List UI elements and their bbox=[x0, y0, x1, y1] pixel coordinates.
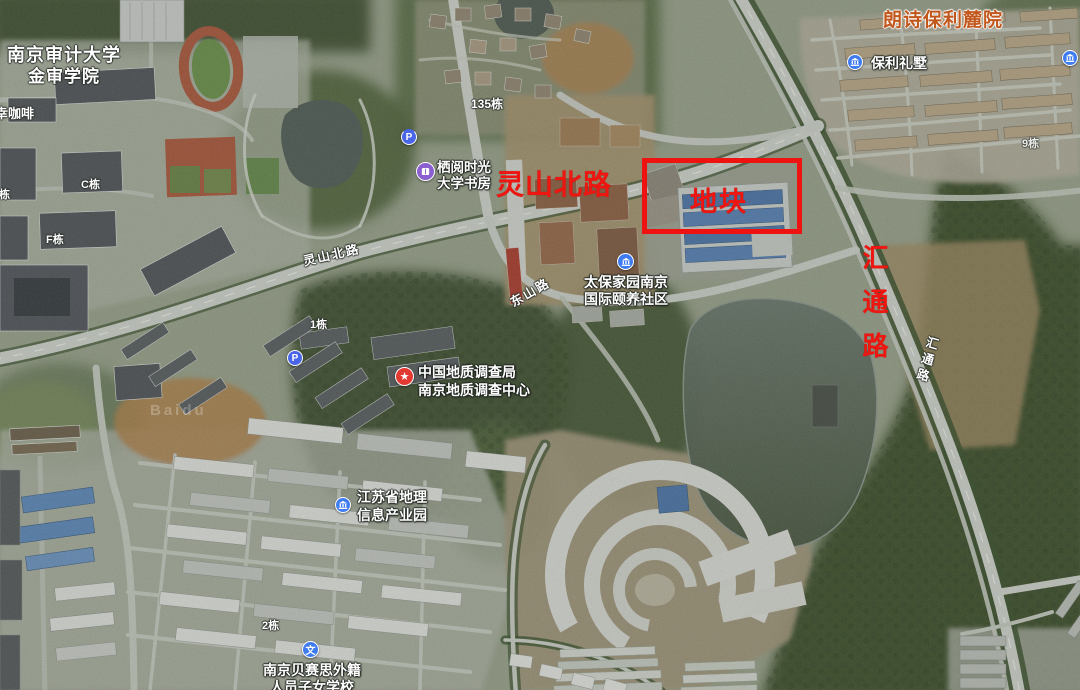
poi-label-coffee[interactable]: 幸咖啡 bbox=[0, 103, 34, 122]
parcel-annotation-text: 地块 bbox=[690, 180, 748, 219]
star-glyph: ★ bbox=[400, 370, 410, 383]
aoi-label-university: 南京审计大学 金审学院 bbox=[6, 44, 122, 88]
bookstore-icon[interactable] bbox=[416, 162, 435, 181]
building-label-9: 9栋 bbox=[1022, 135, 1039, 151]
parking-glyph: P bbox=[292, 353, 299, 364]
poi-label-basis-school[interactable]: 南京贝赛思外籍 人员子女学校 bbox=[260, 662, 364, 690]
school-icon[interactable]: 文 bbox=[302, 641, 319, 658]
school-glyph: 文 bbox=[306, 642, 316, 657]
geology-line1: 中国地质调查局 bbox=[418, 363, 530, 381]
bank-glyph bbox=[338, 500, 348, 510]
parking-icon-2[interactable]: P bbox=[287, 350, 303, 366]
baoli-villa-icon[interactable] bbox=[847, 54, 863, 70]
community-icon-edge[interactable] bbox=[1062, 50, 1078, 66]
huitong-char-column: 汇通路 bbox=[861, 244, 887, 376]
geology-line2: 南京地质调查中心 bbox=[418, 381, 530, 399]
huitong-road-annotation: 汇通路 bbox=[861, 244, 887, 376]
lingshan-road-annotation: 灵山北路 bbox=[496, 163, 612, 203]
building-label-B: B栋 bbox=[0, 186, 10, 202]
university-name-line1: 南京审计大学 bbox=[6, 44, 122, 66]
bank-glyph bbox=[1065, 53, 1075, 63]
satellite-map-viewport[interactable]: 南京审计大学 金审学院 朗诗保利麓院 幸咖啡 135栋 1栋 C栋 B栋 F栋 … bbox=[0, 0, 1080, 690]
geo-info-park-icon[interactable] bbox=[335, 497, 351, 513]
bookstore-line1: 栖阅时光 bbox=[437, 160, 491, 176]
poi-label-bookstore[interactable]: 栖阅时光 大学书房 bbox=[437, 160, 491, 192]
book-glyph bbox=[420, 166, 431, 177]
building-label-135: 135栋 bbox=[471, 95, 503, 112]
geo-park-line1: 江苏省地理 bbox=[357, 488, 427, 506]
satellite-imagery bbox=[0, 0, 1080, 690]
school-line2: 人员子女学校 bbox=[260, 679, 364, 690]
taibao-line1: 太保家园南京 bbox=[574, 274, 678, 291]
parking-icon[interactable]: P bbox=[401, 129, 417, 145]
building-label-1: 1栋 bbox=[310, 316, 327, 332]
taibao-line2: 国际颐养社区 bbox=[574, 291, 678, 308]
university-name-line2: 金审学院 bbox=[6, 66, 122, 88]
poi-label-taibao[interactable]: 太保家园南京 国际颐养社区 bbox=[574, 274, 678, 308]
poi-label-geo-info-park[interactable]: 江苏省地理 信息产业园 bbox=[357, 488, 427, 524]
bookstore-line2: 大学书房 bbox=[437, 176, 491, 192]
building-label-2: 2栋 bbox=[262, 617, 279, 633]
poi-label-baoli-villa[interactable]: 保利礼墅 bbox=[871, 55, 927, 72]
parking-glyph: P bbox=[406, 132, 413, 143]
baidu-watermark: Baidu bbox=[150, 402, 207, 419]
building-label-C: C栋 bbox=[81, 176, 100, 192]
geology-center-icon[interactable]: ★ bbox=[395, 367, 414, 386]
aoi-label-langshi-community: 朗诗保利麓院 bbox=[883, 5, 1003, 32]
school-line1: 南京贝赛思外籍 bbox=[260, 662, 364, 679]
bank-glyph bbox=[621, 257, 631, 267]
building-label-F: F栋 bbox=[46, 231, 64, 247]
poi-label-geology-center[interactable]: 中国地质调查局 南京地质调查中心 bbox=[418, 363, 530, 399]
geo-park-line2: 信息产业园 bbox=[357, 506, 427, 524]
bank-glyph bbox=[850, 57, 860, 67]
taibao-icon[interactable] bbox=[617, 253, 634, 270]
